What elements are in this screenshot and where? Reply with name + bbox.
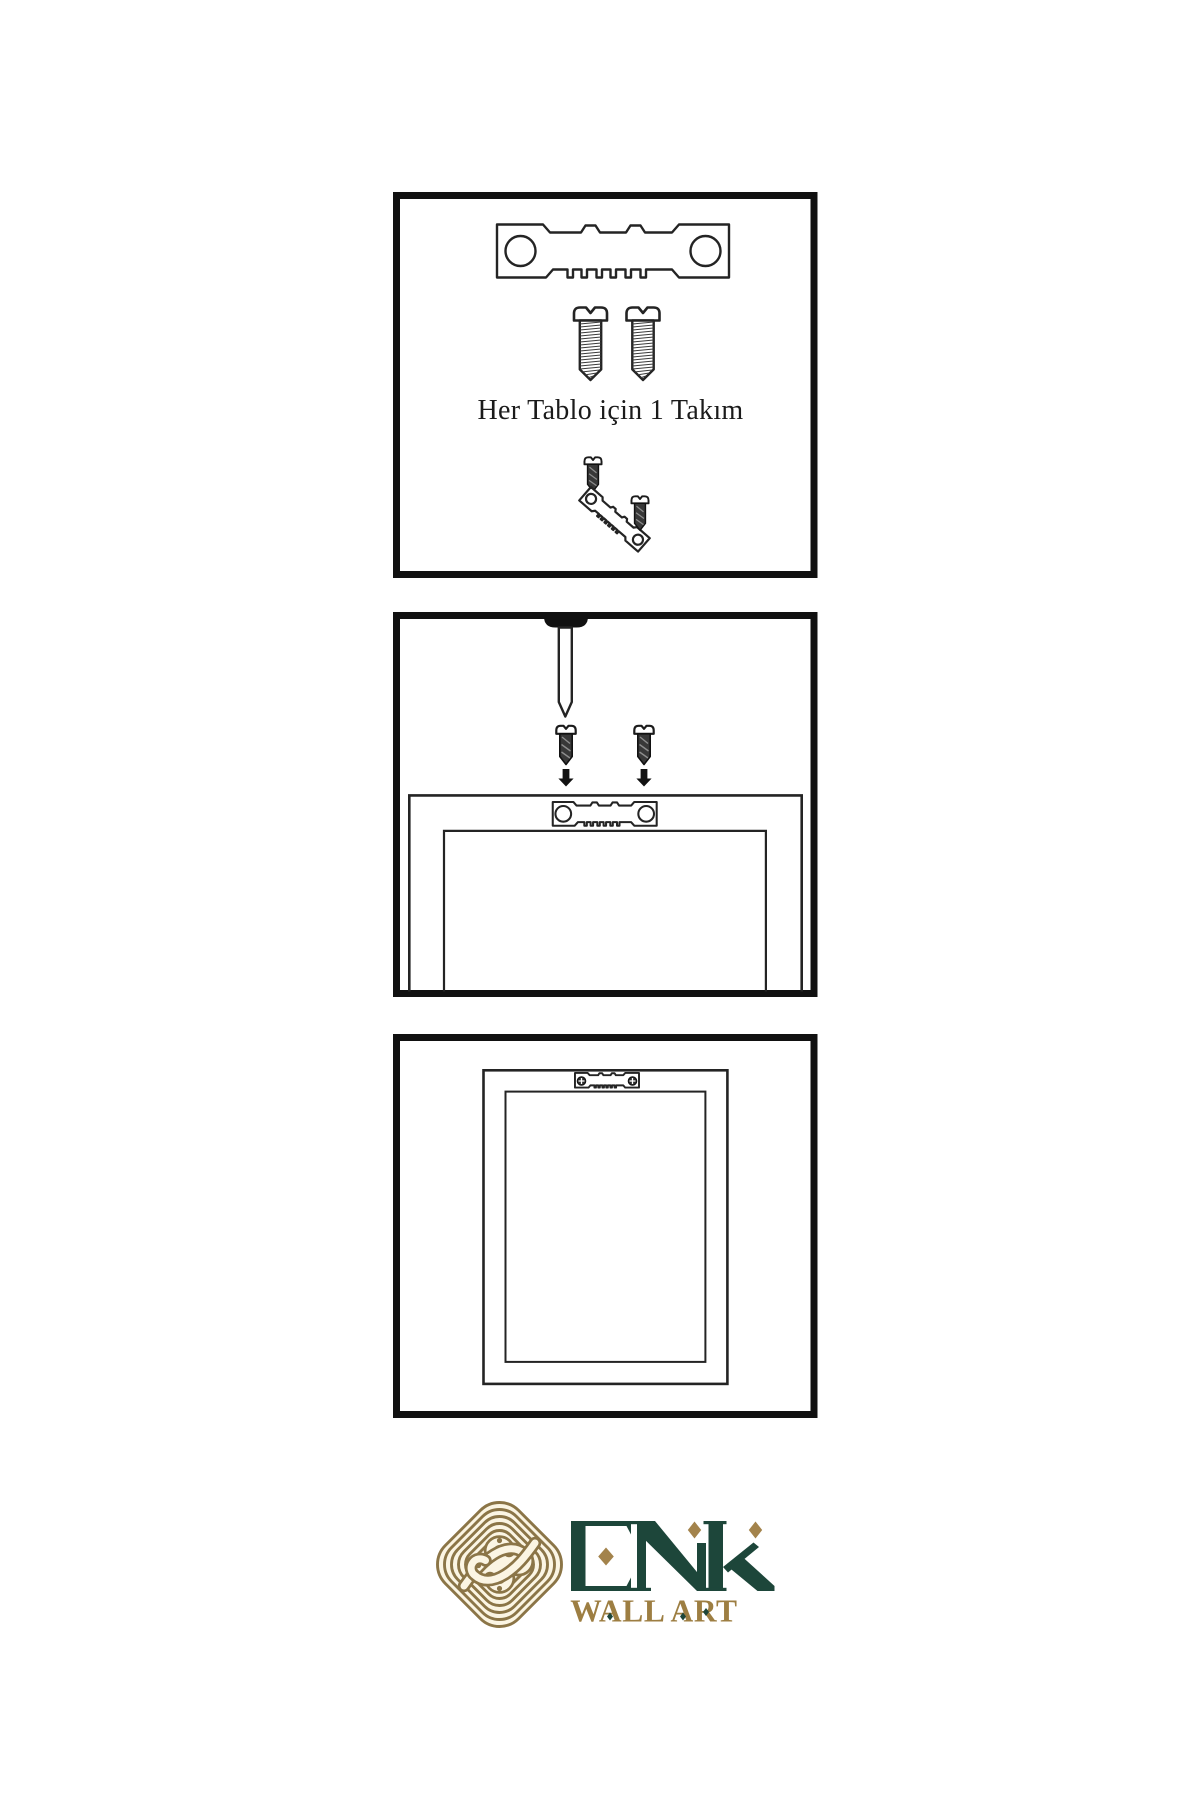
svg-text:WALL ART: WALL ART (570, 1594, 737, 1629)
svg-text:Her Tablo için 1 Takım: Her Tablo için 1 Takım (477, 395, 743, 426)
